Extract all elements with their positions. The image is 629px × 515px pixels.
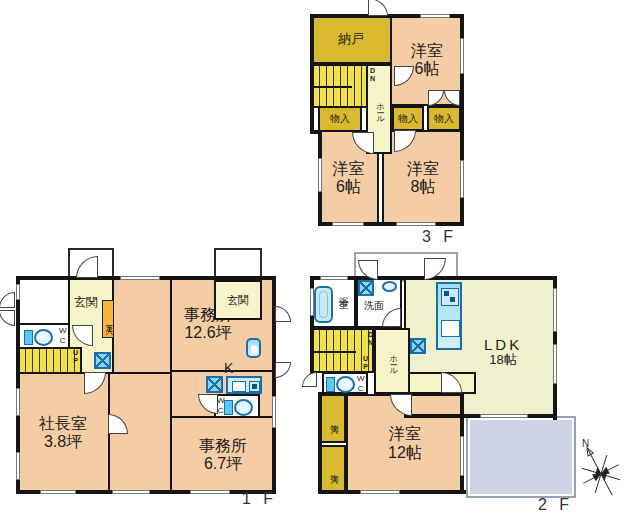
window — [16, 388, 20, 416]
door-swing-icon — [368, 0, 388, 16]
entrance-label: 玄関 — [74, 296, 98, 310]
hall-label: ホール — [374, 97, 385, 121]
room-size: 12帖 — [388, 444, 422, 462]
window — [420, 14, 450, 18]
entrance-right: 玄関 — [214, 280, 262, 320]
utility-room — [16, 276, 70, 325]
room-label: 洋室 — [407, 160, 439, 178]
window — [460, 160, 464, 198]
wc-label: WC — [216, 396, 225, 416]
plan-1f: 玄関 下足入 事務所 12.6坪 玄関 WC UP 社長室 3.8坪 — [14, 248, 282, 504]
window — [318, 158, 322, 192]
door-swing-icon — [302, 372, 317, 387]
floor-label-2f: 2 F — [538, 496, 573, 514]
sink-icon — [441, 320, 460, 337]
bath-label: 浴室 — [338, 288, 350, 292]
floor-label-1f: 1 F — [242, 490, 277, 508]
door-swing-icon — [275, 362, 291, 378]
plan-3f: 納戸 洋室 6帖 ホール DN 物入 物入 物入 洋室 6帖 — [308, 12, 468, 236]
window — [360, 490, 400, 494]
washbasin-icon — [246, 338, 261, 358]
window — [40, 490, 76, 494]
balcony — [466, 416, 576, 498]
room-size: 8帖 — [411, 178, 436, 196]
stairs-3f — [310, 64, 368, 108]
toilet-icon — [326, 376, 355, 393]
stove-icon — [441, 288, 459, 306]
stair-divider — [314, 86, 352, 88]
room-label: 社長室 — [39, 415, 87, 433]
window — [272, 396, 276, 428]
closet: 物入 — [320, 394, 346, 443]
wc-label: WC — [58, 326, 67, 346]
stairs-down-label: DN — [368, 67, 376, 83]
stove-icon — [249, 381, 260, 392]
closet: 物入 — [320, 445, 346, 493]
room-size: 6.7坪 — [204, 455, 242, 473]
utility-box-icon — [94, 352, 111, 369]
plan-2f: 浴室 洗面 LDK 18帖 DN UP ホール WC — [308, 248, 578, 508]
kitchen-label: K — [224, 360, 233, 376]
closet-label: 物入 — [328, 418, 339, 420]
closet-label: 物入 — [434, 112, 454, 126]
kitchen-counter — [436, 282, 462, 350]
toilet-icon — [24, 329, 53, 346]
room-unlabeled-center — [112, 276, 172, 374]
kitchen-counter — [226, 376, 262, 394]
room-label: 事務所 — [199, 437, 247, 455]
closet-label: 物入 — [398, 112, 418, 126]
closet: 物入 — [427, 106, 461, 131]
hall-2f: ホール — [374, 328, 410, 394]
stairs-up-label: UP — [71, 349, 79, 365]
closet-label: 物入 — [328, 468, 339, 470]
refrigerator-icon — [410, 338, 426, 354]
wall — [318, 392, 322, 494]
window — [320, 276, 348, 280]
window — [396, 222, 436, 226]
window — [332, 222, 364, 226]
window — [190, 490, 230, 494]
washroom-label: 洗面 — [364, 300, 384, 312]
window — [553, 344, 557, 384]
bathtub-icon — [314, 286, 333, 323]
stair-divider — [314, 351, 356, 353]
room-storage-nando: 納戸 — [310, 14, 392, 64]
floor-plan-sheet: 納戸 洋室 6帖 ホール DN 物入 物入 物入 洋室 6帖 — [0, 0, 629, 515]
washer-icon — [358, 280, 374, 296]
shoe-cabinet: 下足入 — [102, 300, 114, 338]
toilet-icon — [224, 399, 253, 416]
window — [16, 452, 20, 480]
room-label: 納戸 — [338, 32, 364, 47]
room-label: 洋室 — [411, 42, 443, 60]
closet: 物入 — [318, 106, 362, 132]
refrigerator-icon — [206, 376, 223, 393]
closet-label: 物入 — [330, 112, 350, 126]
room-label: 洋室 — [333, 160, 365, 178]
sink-icon — [382, 281, 397, 292]
wc-label: WC — [356, 374, 365, 394]
entrance-label: 玄関 — [227, 293, 249, 308]
stairs-up-label: UP — [361, 355, 369, 371]
stairs-down-label: DN — [366, 331, 374, 347]
room-size: 12.6坪 — [184, 324, 231, 342]
window — [120, 276, 160, 280]
room-size: 6帖 — [415, 60, 440, 78]
wall — [310, 14, 314, 134]
room-label: 洋室 — [389, 425, 421, 443]
shoe-cabinet-label: 下足入 — [103, 318, 114, 321]
window — [460, 436, 464, 476]
sink-icon — [232, 381, 246, 392]
room-size: 18帖 — [489, 353, 516, 368]
door-swing-icon — [275, 306, 291, 322]
window — [112, 490, 150, 494]
closet: 物入 — [392, 106, 424, 131]
window — [480, 414, 528, 418]
room-size: 6帖 — [336, 178, 361, 196]
floor-label-3f: 3 F — [422, 228, 457, 246]
hall-label: ホール — [387, 349, 398, 373]
door-swing-icon — [0, 292, 15, 308]
window — [16, 284, 20, 300]
compass-north-label: N — [582, 438, 589, 449]
room-label: LDK — [484, 336, 522, 353]
room-office-small: 事務所 6.7坪 — [170, 416, 276, 494]
window — [460, 38, 464, 74]
room-size: 3.8坪 — [44, 433, 82, 451]
window — [553, 288, 557, 332]
door-swing-icon — [0, 310, 15, 326]
